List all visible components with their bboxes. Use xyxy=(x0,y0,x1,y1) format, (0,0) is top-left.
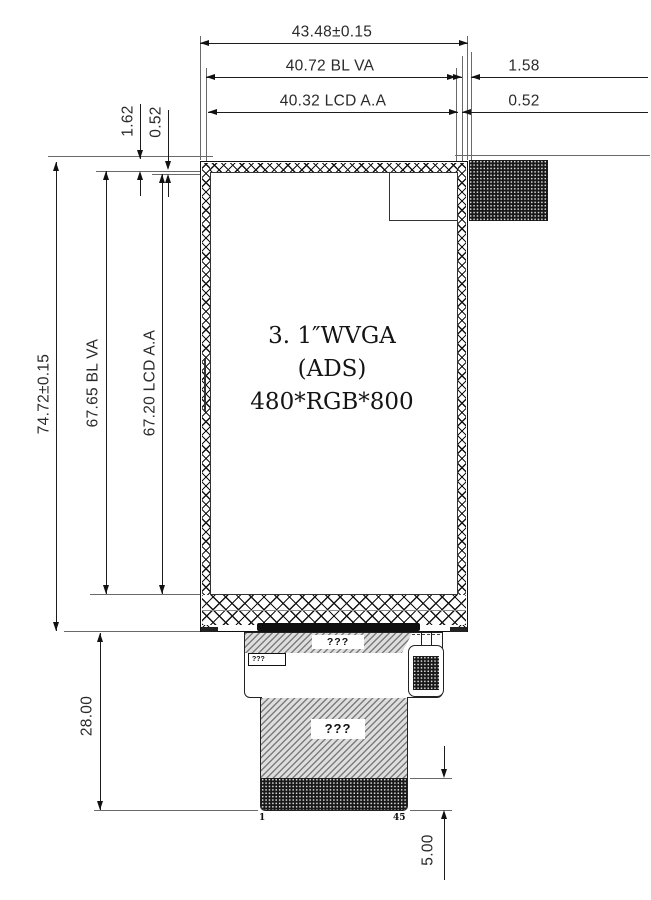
dim-text-right-offset1: 1.58 xyxy=(508,57,539,74)
dim-line-right-offset1 xyxy=(471,77,648,78)
arrowhead xyxy=(206,74,215,80)
dim-text-fpc-length: 28.00 xyxy=(78,696,95,736)
dim-line-contact-height xyxy=(444,746,445,769)
dim-line-fpc-length xyxy=(100,633,101,810)
dim-text-top-offset1: 1.62 xyxy=(119,105,136,136)
ext-line xyxy=(64,631,200,632)
ext-line xyxy=(455,155,650,156)
arrowhead xyxy=(208,109,217,115)
dim-line xyxy=(168,183,169,197)
fpc-strip-label: ??? xyxy=(312,635,364,649)
arrowhead xyxy=(159,174,165,183)
arrowhead xyxy=(459,40,468,46)
arrowhead xyxy=(165,174,171,183)
ext-line xyxy=(96,171,206,172)
corner-mark-left xyxy=(201,627,218,632)
arrowhead xyxy=(462,109,471,115)
arrowhead xyxy=(471,74,480,80)
arrowhead xyxy=(165,161,171,170)
fpc-tail-label: ??? xyxy=(311,719,365,739)
arrowhead xyxy=(97,801,103,810)
ext-line xyxy=(90,594,211,595)
arrowhead xyxy=(97,633,103,642)
dim-line-lcd-width xyxy=(208,112,458,113)
dim-text-overall-height: 74.72±0.15 xyxy=(35,354,52,434)
arrowhead xyxy=(53,162,59,171)
ext-line xyxy=(471,52,472,160)
panel-top-seal-hatch xyxy=(202,163,466,172)
dim-line-lcd-height xyxy=(162,174,163,594)
arrowhead xyxy=(449,109,458,115)
dim-text-overall-width: 43.48±0.15 xyxy=(292,23,372,40)
dim-text-bl-width: 40.72 BL VA xyxy=(286,57,375,74)
fpc-contact-band xyxy=(261,778,408,810)
arrowhead xyxy=(441,810,447,819)
arrowhead xyxy=(53,622,59,631)
dim-line-overall-height xyxy=(56,162,57,631)
ext-line xyxy=(48,156,213,157)
arrowhead xyxy=(441,769,447,778)
ic-area-box xyxy=(389,172,458,221)
dim-text-lcd-height: 67.20 LCD A.A xyxy=(141,330,158,436)
dim-line xyxy=(140,180,141,196)
corner-mark-right xyxy=(450,627,467,632)
seal-seam-mark xyxy=(204,358,206,412)
dim-line-bl-height xyxy=(106,171,107,594)
component-block xyxy=(413,656,439,690)
arrowhead xyxy=(103,585,109,594)
panel-spec-line1: 3. 1″WVGA xyxy=(250,320,413,353)
dim-line-right-offset2 xyxy=(462,112,648,113)
panel-spec-line2: (ADS) xyxy=(250,353,413,386)
ext-line xyxy=(94,810,258,811)
arrowhead xyxy=(453,74,462,80)
ext-line xyxy=(410,778,452,779)
pin-1-label: 1 xyxy=(259,813,265,823)
panel-right-seal-hatch xyxy=(458,163,466,630)
panel-spec-line3: 480*RGB*800 xyxy=(250,386,413,419)
dim-text-top-offset2: 0.52 xyxy=(147,106,164,137)
fpc-tail xyxy=(260,698,408,811)
arrowhead xyxy=(137,171,143,180)
ext-line xyxy=(200,36,201,160)
bonding-bar xyxy=(257,623,420,632)
dim-text-contact-height: 5.00 xyxy=(419,834,436,865)
dim-line-bl-width xyxy=(206,77,456,78)
ext-line xyxy=(206,68,207,163)
arrowhead xyxy=(137,150,143,159)
arrowhead xyxy=(200,40,209,46)
arrowhead xyxy=(159,585,165,594)
dim-line xyxy=(444,819,445,880)
arrowhead xyxy=(103,171,109,180)
lcd-module-outline-drawing: 43.48±0.15 40.72 BL VA 1.58 40.32 LCD A.… xyxy=(0,0,651,900)
fpc-small-label-box: ??? xyxy=(248,653,286,666)
ext-line xyxy=(467,36,468,160)
dim-line-overall-width xyxy=(200,43,468,44)
dim-text-right-offset2: 0.52 xyxy=(508,92,539,109)
seal-mid-line xyxy=(202,610,466,611)
dim-line-top-offset2 xyxy=(168,110,169,161)
dim-text-lcd-width: 40.32 LCD A.A xyxy=(280,92,386,109)
panel-spec-text: 3. 1″WVGA (ADS) 480*RGB*800 xyxy=(250,320,413,419)
pin-45-label: 45 xyxy=(393,813,406,823)
tape-block xyxy=(469,160,548,221)
dim-text-bl-height: 67.65 BL VA xyxy=(84,339,101,428)
